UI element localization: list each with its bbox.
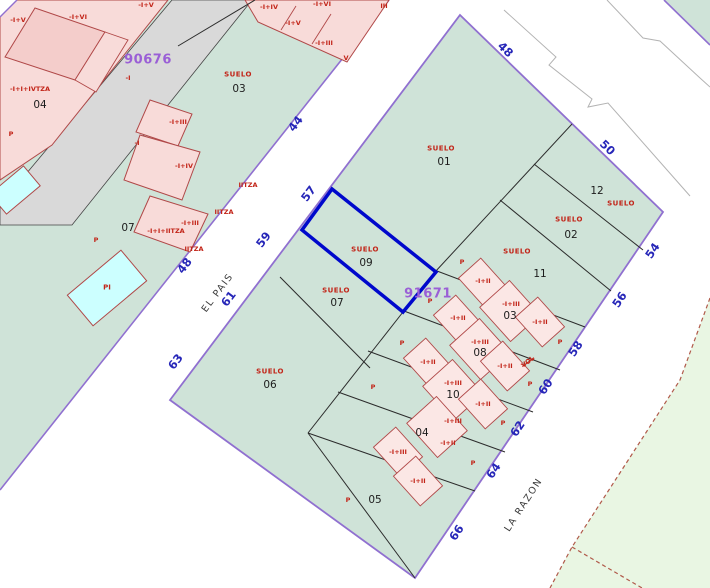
building-label-iitza-16: IITZA [238, 182, 257, 189]
p-marker-p-8: P [501, 420, 506, 427]
suelo-label-suelo-5: SUELO [351, 247, 379, 254]
building-label-iiii-23: -I+III [471, 339, 489, 346]
parcel-number-04-14[interactable]: 04 [415, 428, 428, 439]
parcel-number-03-11[interactable]: 03 [503, 311, 516, 322]
street-number-66-8: 66 [448, 523, 466, 543]
street-number-56-3: 56 [611, 290, 629, 310]
suelo-label-suelo-3: SUELO [555, 217, 583, 224]
suelo-label-suelo-6: SUELO [322, 288, 350, 295]
building-label-i-9: -I [125, 75, 130, 82]
building-label-iii-7: III [380, 3, 387, 10]
sheet-id-90676-0: 90676 [124, 54, 172, 67]
parcel-number-09-5[interactable]: 09 [359, 258, 372, 269]
parcel-number-01-0[interactable]: 01 [437, 157, 450, 168]
parcel-number-07-6[interactable]: 07 [330, 298, 343, 309]
p-marker-p-6: P [528, 381, 533, 388]
building-label-i-10: -I [134, 140, 139, 147]
building-label-iii-29: -I+II [440, 440, 455, 447]
parcel-number-11-4[interactable]: 11 [533, 269, 546, 280]
misc-label-vol-0: VOL [520, 355, 536, 369]
p-marker-p-7: P [371, 384, 376, 391]
building-label-ivi-4: -I+VI [313, 1, 331, 8]
building-label-iiii-6: -I+III [315, 40, 333, 47]
parcel-number-12-2[interactable]: 12 [590, 186, 603, 197]
building-label-iiii-30: -I+III [389, 449, 407, 456]
parcel-number-02-3[interactable]: 02 [564, 230, 577, 241]
p-marker-p-5: P [558, 339, 563, 346]
p-marker-p-3: P [428, 298, 433, 305]
p-marker-p-2: P [460, 259, 465, 266]
building-label-iv-5: -I+V [285, 20, 301, 27]
suelo-label-suelo-7: SUELO [256, 369, 284, 376]
p-marker-p-4: P [400, 340, 405, 347]
street-name-larazon-1: LA RAZON [503, 477, 545, 534]
suelo-label-suelo-2: SUELO [607, 201, 635, 208]
p-marker-p-10: P [346, 497, 351, 504]
building-label-iii-26: -I+II [420, 359, 435, 366]
street-number-57-9: 57 [300, 184, 319, 204]
street-number-50-1: 50 [597, 138, 617, 157]
suelo-label-suelo-1: SUELO [224, 72, 252, 79]
building-label-v-8: V [343, 55, 348, 62]
street-number-58-4: 58 [567, 339, 585, 359]
p-marker-p-0: P [9, 131, 14, 138]
building-label-iiii-20: -I+III [502, 301, 520, 308]
building-label-iitza-17: IITZA [214, 209, 233, 216]
building-label-iv-2: -I+V [138, 2, 154, 9]
pool-label-pi-0: PI [103, 285, 111, 292]
street-number-54-2: 54 [644, 241, 662, 261]
labels-layer: 9067691671 EL PAISLA RAZON 4850545658606… [0, 0, 710, 588]
building-label-iv-0: -I+V [10, 17, 26, 24]
parcel-number-07-9[interactable]: 07 [121, 223, 134, 234]
parcel-number-05-8[interactable]: 05 [368, 495, 381, 506]
building-label-iiv-3: -I+IV [260, 4, 278, 11]
building-label-iii-24: -I+II [497, 363, 512, 370]
street-number-60-5: 60 [537, 377, 555, 397]
building-label-iiii-14: -I+III [181, 220, 199, 227]
parcel-number-10-13[interactable]: 10 [446, 390, 459, 401]
parcel-number-06-7[interactable]: 06 [263, 380, 276, 391]
street-number-59-10: 59 [255, 230, 274, 250]
building-label-iiii-12: -I+III [169, 119, 187, 126]
building-label-iiii-25: -I+III [444, 380, 462, 387]
street-number-64-7: 64 [485, 461, 503, 481]
parcel-number-04-10[interactable]: 04 [33, 100, 46, 111]
parcel-number-08-12[interactable]: 08 [473, 348, 486, 359]
building-label-iii-22: -I+II [450, 315, 465, 322]
building-label-ivi-1: -I+VI [69, 14, 87, 21]
building-label-iiiitza-15: -I+I+IITZA [147, 228, 184, 235]
street-number-62-6: 62 [509, 419, 527, 439]
street-number-48-13: 48 [176, 256, 195, 276]
building-label-iii-27: -I+II [475, 401, 490, 408]
cadastral-map: 9067691671 EL PAISLA RAZON 4850545658606… [0, 0, 710, 588]
suelo-label-suelo-0: SUELO [427, 146, 455, 153]
suelo-label-suelo-4: SUELO [503, 249, 531, 256]
p-marker-p-9: P [471, 460, 476, 467]
building-label-iiv-13: -I+IV [175, 163, 193, 170]
parcel-number-03-1[interactable]: 03 [232, 84, 245, 95]
building-label-iii-31: -I+II [410, 478, 425, 485]
street-number-48-0: 48 [495, 40, 515, 59]
building-label-iii-19: -I+II [475, 278, 490, 285]
street-number-63-12: 63 [167, 352, 186, 372]
p-marker-p-1: P [94, 237, 99, 244]
building-label-iitza-18: IITZA [184, 246, 203, 253]
building-label-iii-21: -I+II [532, 319, 547, 326]
building-label-iiii-28: -I+III [444, 418, 462, 425]
street-number-44-14: 44 [287, 114, 306, 134]
building-label-iiivtza-11: -I+I+IVTZA [10, 86, 50, 93]
